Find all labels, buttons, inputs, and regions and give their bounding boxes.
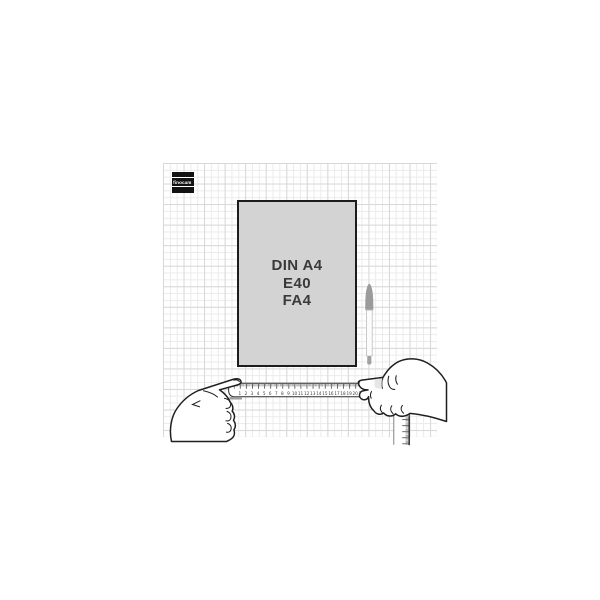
ruler-cm-label: 8 [281,391,284,396]
ruler-cm-label: 3 [251,391,254,396]
ruler-cm-label: 12 [304,391,310,396]
ruler-cm-label: 11 [298,391,304,396]
pinch-shading [375,379,384,389]
pen-end-plug [367,356,371,365]
pen-cap-tip [365,284,373,310]
ruler-cm-label: 2 [245,391,248,396]
horizontal-ruler: 123456789101112131415161718192021 [229,383,372,399]
ruler-cm-label: 10 [292,391,298,396]
ruler-cm-label: 20 [353,391,359,396]
ruler-cm-label: 13 [310,391,316,396]
ruler-cm-label: 14 [316,391,322,396]
ballpoint-pen-icon [365,284,373,365]
ruler-cm-label: 18 [340,391,346,396]
ruler-cm-label: 7 [275,391,278,396]
ruler-cm-label: 17 [334,391,340,396]
ruler-cm-label: 4 [257,391,260,396]
ruler-cm-label: 16 [328,391,334,396]
ruler-cm-label: 5 [263,391,266,396]
ruler-left-shadow [230,397,243,400]
product-size-illustration: finocam DIN A4 E40 FA4 [0,0,600,600]
horizontal-ruler-numbers: 123456789101112131415161718192021 [239,391,365,396]
ruler-cm-label: 19 [346,391,352,396]
ruler-cm-label: 1 [239,391,242,396]
illustration-overlay: 123456789101112131415161718192021 [0,0,600,600]
right-hand-icon [358,359,446,422]
ruler-cm-label: 6 [269,391,272,396]
ruler-cm-label: 9 [287,391,290,396]
ruler-cm-label: 15 [322,391,328,396]
pen-body [366,310,372,356]
horizontal-ruler-ticks [234,384,368,389]
